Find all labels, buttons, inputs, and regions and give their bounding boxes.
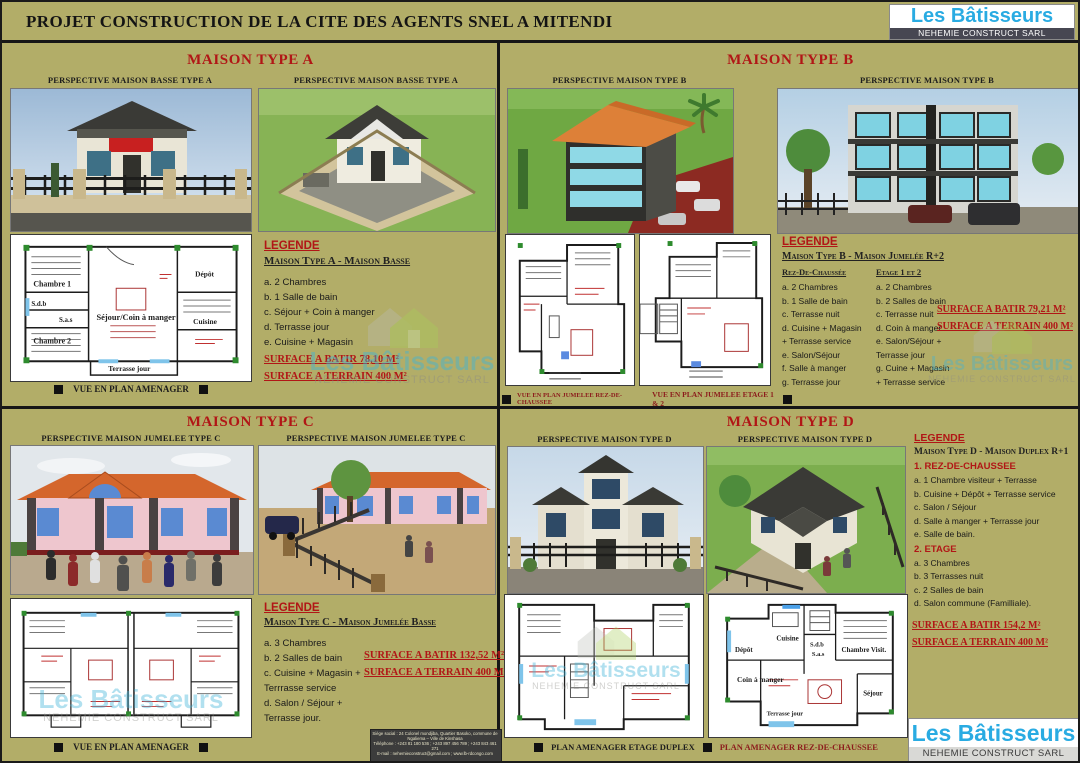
house-c-street-illustration — [11, 446, 253, 594]
plan-d-etage — [504, 594, 704, 738]
bullet-square — [199, 743, 208, 752]
legend-b-item: f. Salle à manger — [782, 362, 868, 376]
header-bar: PROJET CONSTRUCTION DE LA CITE DES AGENT… — [2, 2, 1078, 43]
legend-type-b: LEGENDE Maison Type B - Maison Jumelée R… — [782, 236, 960, 389]
bullet-square — [703, 743, 712, 752]
legend-b-item: + Terrasse service — [876, 376, 960, 390]
caption-perspective-d2: PERSPECTIVE MAISON TYPE D — [706, 434, 904, 444]
contact-phone: Téléphone : +243 81 180 536 ; +243 897 4… — [371, 741, 499, 751]
bullet-square — [502, 395, 511, 404]
plan-d-room-sas: S.a.s — [812, 651, 825, 658]
page-title: PROJET CONSTRUCTION DE LA CITE DES AGENT… — [26, 12, 613, 32]
legend-a-item: a. 2 Chambres — [264, 275, 494, 290]
legend-d-group2-title: 2. ETAGE — [914, 542, 1080, 557]
legend-b-col2-title: Etage 1 et 2 — [876, 267, 960, 277]
floor-plan-d-etage — [505, 595, 703, 737]
plan-a-caption: VUE EN PLAN AMENAGER — [73, 384, 189, 394]
legend-b-item: g. Terrasse jour — [782, 376, 868, 390]
plan-a-room-sejour: Séjour/Coin à manger — [96, 313, 175, 322]
legend-a-item: e. Cuisine + Magasin — [264, 335, 494, 350]
brand-subtitle: NEHEMIE CONSTRUCT SARL — [909, 747, 1078, 761]
legend-b-item: d. Cuisine + Magasin — [782, 322, 868, 336]
floor-plan-b-rez — [506, 235, 634, 385]
legend-d-item: c. Salon / Séjour — [914, 501, 1080, 515]
legend-c-heading: LEGENDE — [264, 602, 494, 614]
render-b-street — [777, 88, 1079, 234]
plan-b-etage — [639, 234, 771, 386]
plan-d-room-depot: Dépôt — [735, 647, 753, 654]
plan-d-room-cuisine: Cuisine — [776, 635, 798, 642]
legend-a-item: c. Séjour + Coin à manger — [264, 305, 494, 320]
legend-b-item: a. 2 Chambres — [782, 281, 868, 295]
surfaces-type-b: SURFACE A BATIR 79,21 M² SURFACE A TERRA… — [937, 304, 1073, 338]
house-d-front-illustration — [508, 447, 703, 593]
legend-d-subheading: Maison Type D - Maison Duplex R+1 — [914, 447, 1080, 457]
legend-b-heading: LEGENDE — [782, 236, 960, 248]
render-c-aerial — [258, 445, 496, 595]
caption-perspective-c1: PERSPECTIVE MAISON JUMELEE TYPE C — [10, 433, 252, 443]
caption-perspective-d1: PERSPECTIVE MAISON TYPE D — [507, 434, 702, 444]
contact-email: E-mail : nehemieconstruct@gmail.com ; ww… — [371, 751, 499, 756]
legend-c-item: Terrrasse service — [264, 681, 372, 696]
legend-c-subheading: Maison Type C - Maison Jumelée Basse — [264, 617, 494, 628]
legend-a-item: d. Terrasse jour — [264, 320, 494, 335]
legend-a-heading: LEGENDE — [264, 240, 494, 252]
floor-plan-a: Chambre 1 S.d.b S.a.s Chambre 2 Séjour/C… — [11, 235, 251, 381]
legend-b-item: a. 2 Chambres — [876, 281, 960, 295]
surface-batir-c: SURFACE A BATIR 132,52 M² — [364, 650, 507, 661]
render-d-aerial — [706, 446, 906, 594]
legend-c-item: a. 3 Chambres — [264, 636, 372, 651]
brand-subtitle: NEHEMIE CONSTRUCT SARL — [890, 28, 1074, 39]
legend-a-item: b. 1 Salle de bain — [264, 290, 494, 305]
legend-d-item: b. Cuisine + Dépôt + Terrasse service — [914, 488, 1080, 502]
plan-b-caption-rez: VUE EN PLAN JUMELEE REZ-DE-CHAUSSEE — [517, 392, 646, 406]
plan-a-room-terrasse: Terrasse jour — [108, 364, 151, 373]
legend-c-item: b. 2 Salles de bain — [264, 651, 372, 666]
plan-c — [10, 598, 252, 738]
plan-d-rez: Dépôt Cuisine S.d.b S.a.s Chambre Visit.… — [708, 594, 908, 738]
surface-terrain-a: SURFACE A TERRAIN 400 M² — [264, 371, 407, 382]
surface-batir-b: SURFACE A BATIR 79,21 M² — [937, 304, 1073, 315]
plan-a-room-sdb: S.d.b — [31, 301, 46, 308]
plan-d-caption-rez: PLAN AMENAGER REZ-DE-CHAUSSEE — [720, 742, 878, 752]
plan-d-caption-row: PLAN AMENAGER ETAGE DUPLEX PLAN AMENAGER… — [504, 742, 908, 752]
floor-plan-d-rez: Dépôt Cuisine S.d.b S.a.s Chambre Visit.… — [709, 595, 907, 737]
house-a-front-illustration — [11, 89, 251, 231]
render-b-aerial — [507, 88, 734, 234]
legend-c-item: Terrasse jour. — [264, 711, 372, 726]
plan-d-room-sejour: Séjour — [863, 691, 883, 698]
bullet-square — [534, 743, 543, 752]
plan-b-caption-etage: VUE EN PLAN JUMELEE ETAGE 1 & 2 — [652, 390, 777, 408]
render-a-front — [10, 88, 252, 232]
legend-d-item: c. 2 Salles de bain — [914, 584, 1080, 598]
legend-d-group1-title: 1. REZ-DE-CHAUSSEE — [914, 459, 1080, 474]
section-title-type-a: MAISON TYPE A — [2, 52, 499, 69]
plan-c-caption: VUE EN PLAN AMENAGER — [73, 742, 189, 752]
plan-d-room-sdb: S.d.b — [810, 641, 824, 648]
legend-b-col1-title: Rez-De-Chaussée — [782, 267, 868, 277]
house-a-aerial-illustration — [259, 89, 495, 231]
section-title-type-b: MAISON TYPE B — [499, 52, 1080, 69]
architecture-presentation-board: PROJET CONSTRUCTION DE LA CITE DES AGENT… — [0, 0, 1080, 763]
legend-d-item: d. Salle à manger + Terrasse jour — [914, 515, 1080, 529]
plan-c-caption-row: VUE EN PLAN AMENAGER — [10, 742, 252, 752]
legend-d-item: a. 1 Chambre visiteur + Terrasse — [914, 474, 1080, 488]
plan-d-caption-etage: PLAN AMENAGER ETAGE DUPLEX — [551, 742, 695, 752]
legend-type-d: LEGENDE Maison Type D - Maison Duplex R+… — [914, 432, 1080, 611]
building-b-aerial-illustration — [508, 89, 733, 233]
brand-logo-bottom: Les Bâtisseurs NEHEMIE CONSTRUCT SARL — [908, 718, 1079, 763]
legend-d-heading: LEGENDE — [914, 432, 1080, 444]
legend-d-item: a. 3 Chambres — [914, 557, 1080, 571]
legend-c-item: c. Cuisine + Magasin + — [264, 666, 372, 681]
section-title-type-c: MAISON TYPE C — [2, 414, 499, 431]
legend-b-subheading: Maison Type B - Maison Jumelée R+2 — [782, 251, 960, 262]
surfaces-type-a: SURFACE A BATIR 78,10 M² SURFACE A TERRA… — [264, 354, 407, 388]
plan-a-room-chambre1: Chambre 1 — [33, 279, 71, 288]
legend-b-col-rez: Rez-De-Chaussée a. 2 Chambres b. 1 Salle… — [782, 267, 868, 389]
legend-b-item: b. 1 Salle de bain — [782, 295, 868, 309]
render-d-front — [507, 446, 704, 594]
legend-d-item: d. Salon commune (Familliale). — [914, 597, 1080, 611]
contact-address: Siège social : 24 Colonel mondjiba, Quar… — [371, 731, 499, 741]
surface-terrain-d: SURFACE A TERRAIN 400 M² — [912, 637, 1048, 648]
legend-a-subheading: Maison Type A - Maison Basse — [264, 255, 494, 267]
bullet-square — [54, 743, 63, 752]
plan-a-room-cuisine: Cuisine — [193, 317, 217, 326]
legend-c-item: d. Salon / Séjour + — [264, 696, 372, 711]
plan-d-room-chambre-visit: Chambre Visit. — [842, 647, 887, 654]
legend-b-item: g. Cuine + Magasin — [876, 362, 960, 376]
building-b-street-illustration — [778, 89, 1078, 233]
legend-d-item: b. 3 Terrasses nuit — [914, 570, 1080, 584]
plan-a-room-depot: Dépôt — [195, 269, 214, 278]
surfaces-type-c: SURFACE A BATIR 132,52 M² SURFACE A TERR… — [364, 650, 507, 684]
brand-name: Les Bâtisseurs — [890, 5, 1074, 28]
surface-terrain-b: SURFACE A TERRAIN 400 M² — [937, 321, 1073, 332]
bullet-square — [199, 385, 208, 394]
surfaces-type-d: SURFACE A BATIR 154,2 M² SURFACE A TERRA… — [912, 620, 1048, 654]
legend-b-item: + Terrasse service — [782, 335, 868, 349]
legend-b-item: Terrasse jour — [876, 349, 960, 363]
render-a-aerial — [258, 88, 496, 232]
plan-a-room-chambre2: Chambre 2 — [33, 337, 71, 346]
section-title-type-d: MAISON TYPE D — [499, 414, 1080, 431]
caption-perspective-a1: PERSPECTIVE MAISON BASSE TYPE A — [10, 75, 250, 85]
surface-batir-d: SURFACE A BATIR 154,2 M² — [912, 620, 1048, 631]
plan-a: Chambre 1 S.d.b S.a.s Chambre 2 Séjour/C… — [10, 234, 252, 382]
brand-logo-top: Les Bâtisseurs NEHEMIE CONSTRUCT SARL — [889, 4, 1075, 40]
caption-perspective-c2: PERSPECTIVE MAISON JUMELEE TYPE C — [258, 433, 494, 443]
legend-type-a: LEGENDE Maison Type A - Maison Basse a. … — [264, 240, 494, 350]
plan-a-room-sas: S.a.s — [59, 317, 73, 324]
plan-d-room-terrasse: Terrasse jour — [767, 710, 804, 717]
floor-plan-b-etage — [640, 235, 770, 385]
bullet-square — [54, 385, 63, 394]
legend-b-item: c. Terrasse nuit — [782, 308, 868, 322]
divider-vertical-bottom — [497, 406, 500, 763]
caption-perspective-b1: PERSPECTIVE MAISON TYPE B — [507, 75, 732, 85]
surface-terrain-c: SURFACE A TERRAIN 400 M² — [364, 667, 507, 678]
contact-info-box: Siège social : 24 Colonel mondjiba, Quar… — [370, 729, 502, 762]
bullet-square — [783, 395, 792, 404]
caption-perspective-a2: PERSPECTIVE MAISON BASSE TYPE A — [258, 75, 494, 85]
plan-b-rez — [505, 234, 635, 386]
floor-plan-c — [11, 599, 251, 737]
legend-d-item: e. Salle de bain. — [914, 528, 1080, 542]
house-d-aerial-illustration — [707, 447, 905, 593]
house-c-aerial-illustration — [259, 446, 495, 594]
plan-b-caption-row: VUE EN PLAN JUMELEE REZ-DE-CHAUSSEE VUE … — [502, 390, 792, 408]
divider-vertical-top — [497, 43, 500, 406]
plan-a-caption-row: VUE EN PLAN AMENAGER — [10, 384, 252, 394]
brand-name: Les Bâtisseurs — [909, 719, 1078, 747]
render-c-street — [10, 445, 254, 595]
caption-perspective-b2: PERSPECTIVE MAISON TYPE B — [777, 75, 1077, 85]
plan-d-room-coin-manger: Coin à manger — [737, 675, 784, 684]
legend-b-item: e. Salon/Séjour — [782, 349, 868, 363]
surface-batir-a: SURFACE A BATIR 78,10 M² — [264, 354, 407, 365]
